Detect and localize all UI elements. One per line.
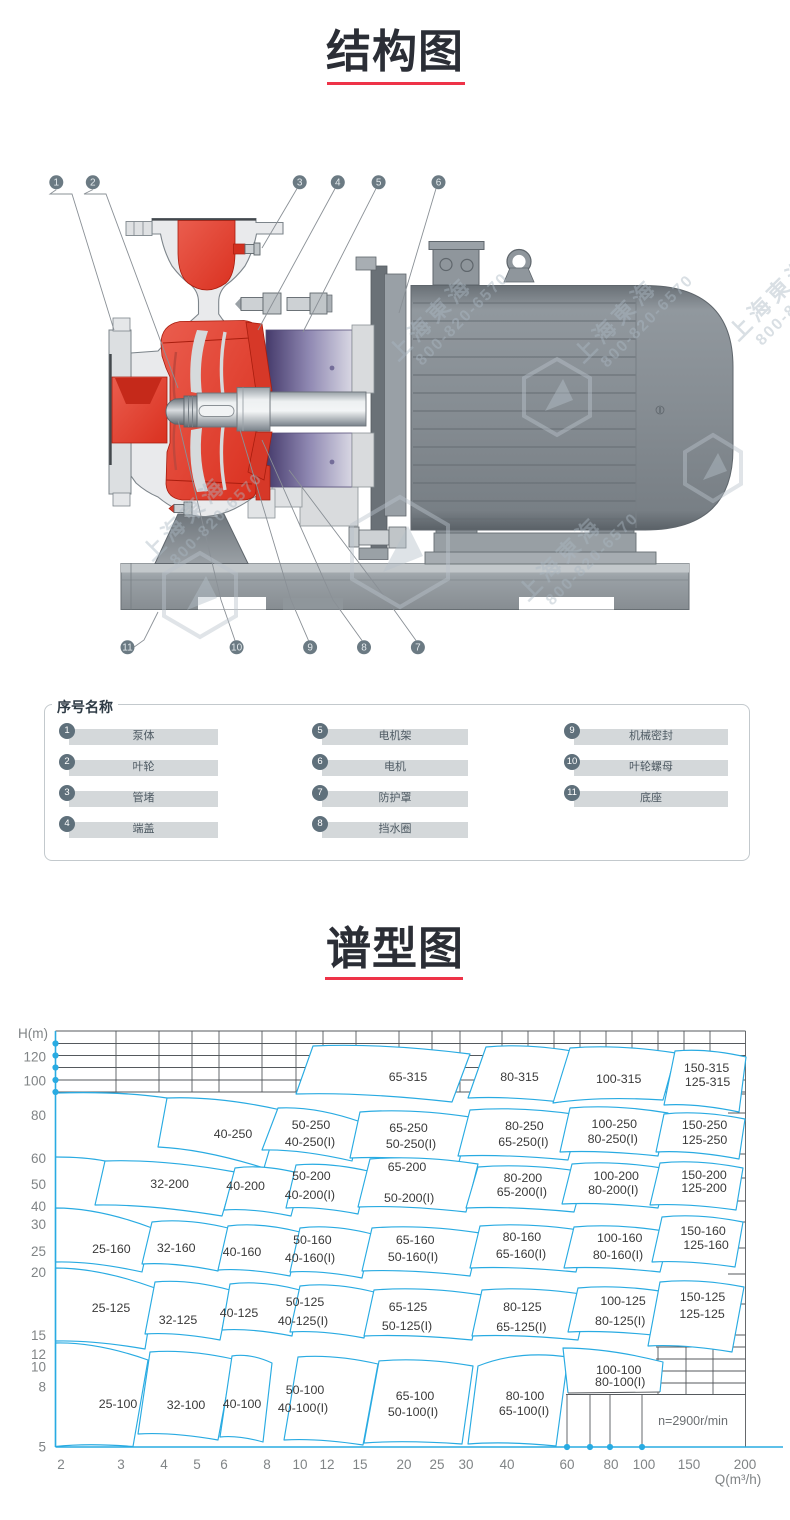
- svg-text:12: 12: [319, 1457, 334, 1472]
- svg-text:40-160: 40-160: [223, 1245, 262, 1259]
- svg-text:50-160: 50-160: [293, 1233, 332, 1247]
- svg-text:8: 8: [38, 1380, 46, 1395]
- svg-text:9: 9: [307, 643, 313, 654]
- svg-text:65-200: 65-200: [388, 1160, 427, 1174]
- svg-text:50: 50: [31, 1177, 46, 1192]
- svg-text:125-315: 125-315: [685, 1075, 731, 1089]
- svg-text:80-160: 80-160: [503, 1230, 542, 1244]
- svg-text:150-250: 150-250: [682, 1118, 728, 1132]
- svg-text:5: 5: [38, 1440, 46, 1455]
- svg-text:50-250(I): 50-250(I): [386, 1137, 436, 1151]
- svg-text:10: 10: [292, 1457, 307, 1472]
- svg-text:25: 25: [429, 1457, 444, 1472]
- svg-text:40-125: 40-125: [220, 1306, 259, 1320]
- svg-text:6: 6: [220, 1457, 228, 1472]
- svg-text:65-100: 65-100: [396, 1389, 435, 1403]
- svg-text:40: 40: [499, 1457, 514, 1472]
- svg-text:65-315: 65-315: [389, 1070, 428, 1084]
- svg-text:32-200: 32-200: [150, 1177, 189, 1191]
- svg-text:50-100(I): 50-100(I): [388, 1405, 438, 1419]
- svg-text:40-160(I): 40-160(I): [285, 1251, 335, 1265]
- svg-text:125-125: 125-125: [679, 1307, 725, 1321]
- svg-text:2: 2: [57, 1457, 65, 1472]
- svg-text:20: 20: [31, 1265, 46, 1280]
- svg-text:5: 5: [376, 178, 382, 189]
- svg-text:40-100(I): 40-100(I): [278, 1401, 328, 1415]
- svg-text:32-100: 32-100: [167, 1398, 206, 1412]
- svg-text:25: 25: [31, 1244, 46, 1259]
- svg-text:n=2900r/min: n=2900r/min: [658, 1414, 728, 1428]
- svg-text:25-160: 25-160: [92, 1242, 131, 1256]
- svg-text:80: 80: [31, 1108, 46, 1123]
- svg-text:65-200(I): 65-200(I): [497, 1185, 547, 1199]
- svg-text:30: 30: [31, 1217, 46, 1232]
- svg-text:40-200: 40-200: [226, 1179, 265, 1193]
- svg-text:65-250(I): 65-250(I): [498, 1135, 548, 1149]
- svg-text:65-125(I): 65-125(I): [496, 1320, 546, 1334]
- svg-text:150-160: 150-160: [680, 1224, 726, 1238]
- svg-text:40-200(I): 40-200(I): [285, 1188, 335, 1202]
- svg-text:60: 60: [31, 1151, 46, 1166]
- svg-text:80-125(I): 80-125(I): [595, 1314, 645, 1328]
- svg-text:80-315: 80-315: [500, 1070, 539, 1084]
- svg-text:80-200(I): 80-200(I): [588, 1183, 638, 1197]
- svg-text:80-250: 80-250: [505, 1119, 544, 1133]
- svg-text:200: 200: [734, 1457, 757, 1472]
- svg-text:40-100: 40-100: [223, 1397, 262, 1411]
- svg-text:10: 10: [231, 643, 243, 654]
- svg-text:50-125(I): 50-125(I): [382, 1319, 432, 1333]
- svg-text:50-200(I): 50-200(I): [384, 1191, 434, 1205]
- svg-text:80-100(I): 80-100(I): [595, 1375, 645, 1389]
- svg-text:120: 120: [23, 1050, 46, 1065]
- svg-text:150: 150: [678, 1457, 701, 1472]
- svg-text:6: 6: [436, 178, 442, 189]
- svg-text:80-125: 80-125: [503, 1300, 542, 1314]
- svg-text:H(m): H(m): [18, 1026, 48, 1041]
- svg-text:3: 3: [297, 178, 303, 189]
- svg-text:80-250(I): 80-250(I): [588, 1132, 638, 1146]
- svg-text:65-160(I): 65-160(I): [496, 1247, 546, 1261]
- svg-text:11: 11: [122, 643, 133, 654]
- svg-text:100: 100: [23, 1074, 46, 1089]
- svg-text:3: 3: [117, 1457, 125, 1472]
- svg-text:65-250: 65-250: [389, 1121, 428, 1135]
- svg-text:32-160: 32-160: [157, 1241, 196, 1255]
- svg-text:32-125: 32-125: [159, 1313, 198, 1327]
- svg-text:1: 1: [54, 178, 60, 189]
- svg-text:25-125: 25-125: [92, 1301, 131, 1315]
- svg-text:8: 8: [263, 1457, 271, 1472]
- svg-text:50-100: 50-100: [286, 1383, 325, 1397]
- svg-text:100-160: 100-160: [597, 1231, 643, 1245]
- svg-text:100-125: 100-125: [600, 1294, 646, 1308]
- svg-text:80-200: 80-200: [504, 1171, 543, 1185]
- svg-text:65-160: 65-160: [396, 1233, 435, 1247]
- svg-text:150-200: 150-200: [681, 1168, 727, 1182]
- svg-text:150-315: 150-315: [684, 1061, 730, 1075]
- svg-text:50-200: 50-200: [292, 1169, 331, 1183]
- svg-text:20: 20: [396, 1457, 411, 1472]
- svg-text:125-250: 125-250: [682, 1133, 728, 1147]
- svg-text:40-125(I): 40-125(I): [278, 1314, 328, 1328]
- svg-text:65-100(I): 65-100(I): [499, 1404, 549, 1418]
- svg-text:125-200: 125-200: [681, 1181, 727, 1195]
- svg-text:2: 2: [90, 178, 96, 189]
- svg-text:40-250: 40-250: [214, 1127, 253, 1141]
- svg-text:25-100: 25-100: [99, 1397, 138, 1411]
- svg-text:125-160: 125-160: [683, 1238, 729, 1252]
- svg-text:40: 40: [31, 1199, 46, 1214]
- svg-text:60: 60: [559, 1457, 574, 1472]
- svg-text:100-250: 100-250: [592, 1117, 638, 1131]
- svg-text:80-160(I): 80-160(I): [593, 1248, 643, 1262]
- svg-text:Q(m³/h): Q(m³/h): [715, 1472, 762, 1487]
- svg-text:100-200: 100-200: [593, 1169, 639, 1183]
- svg-text:15: 15: [31, 1328, 46, 1343]
- svg-text:100-315: 100-315: [596, 1072, 642, 1086]
- svg-text:80: 80: [603, 1457, 618, 1472]
- svg-text:4: 4: [335, 178, 341, 189]
- svg-text:65-125: 65-125: [389, 1300, 428, 1314]
- svg-text:100: 100: [633, 1457, 656, 1472]
- svg-text:4: 4: [160, 1457, 168, 1472]
- svg-text:30: 30: [458, 1457, 473, 1472]
- svg-text:15: 15: [352, 1457, 367, 1472]
- svg-text:150-125: 150-125: [680, 1290, 726, 1304]
- svg-text:40-250(I): 40-250(I): [285, 1135, 335, 1149]
- svg-text:8: 8: [361, 643, 367, 654]
- svg-text:80-100: 80-100: [506, 1389, 545, 1403]
- svg-text:50-250: 50-250: [292, 1118, 331, 1132]
- svg-text:50-125: 50-125: [286, 1295, 325, 1309]
- svg-text:50-160(I): 50-160(I): [388, 1250, 438, 1264]
- svg-text:10: 10: [31, 1360, 46, 1375]
- svg-text:7: 7: [415, 643, 421, 654]
- svg-text:5: 5: [193, 1457, 201, 1472]
